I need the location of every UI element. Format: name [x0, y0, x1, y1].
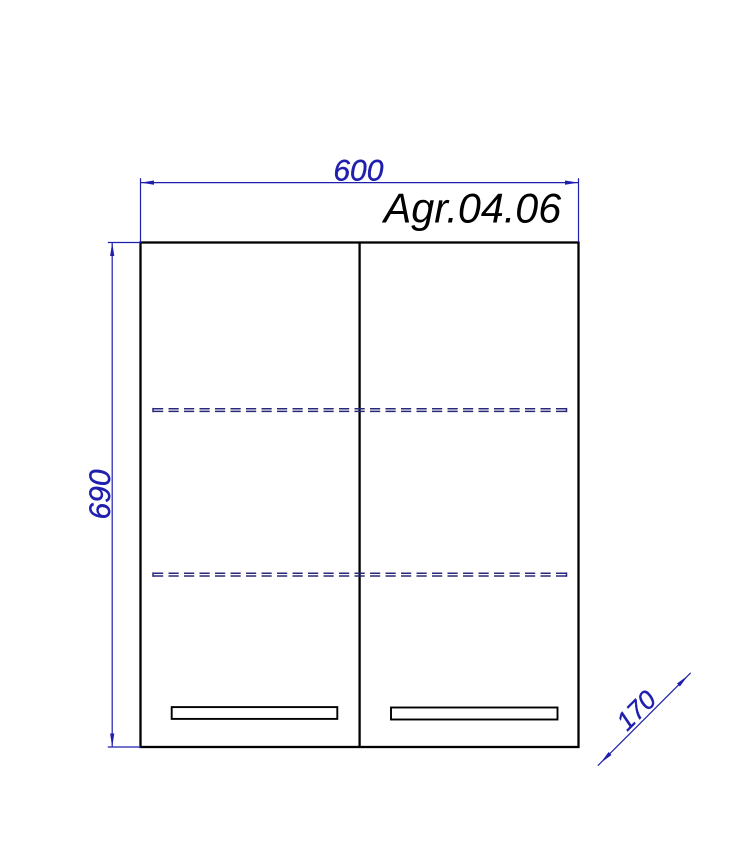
- svg-text:600: 600: [333, 154, 383, 187]
- svg-text:Agr.04.06: Agr.04.06: [381, 185, 562, 231]
- svg-text:690: 690: [84, 469, 117, 519]
